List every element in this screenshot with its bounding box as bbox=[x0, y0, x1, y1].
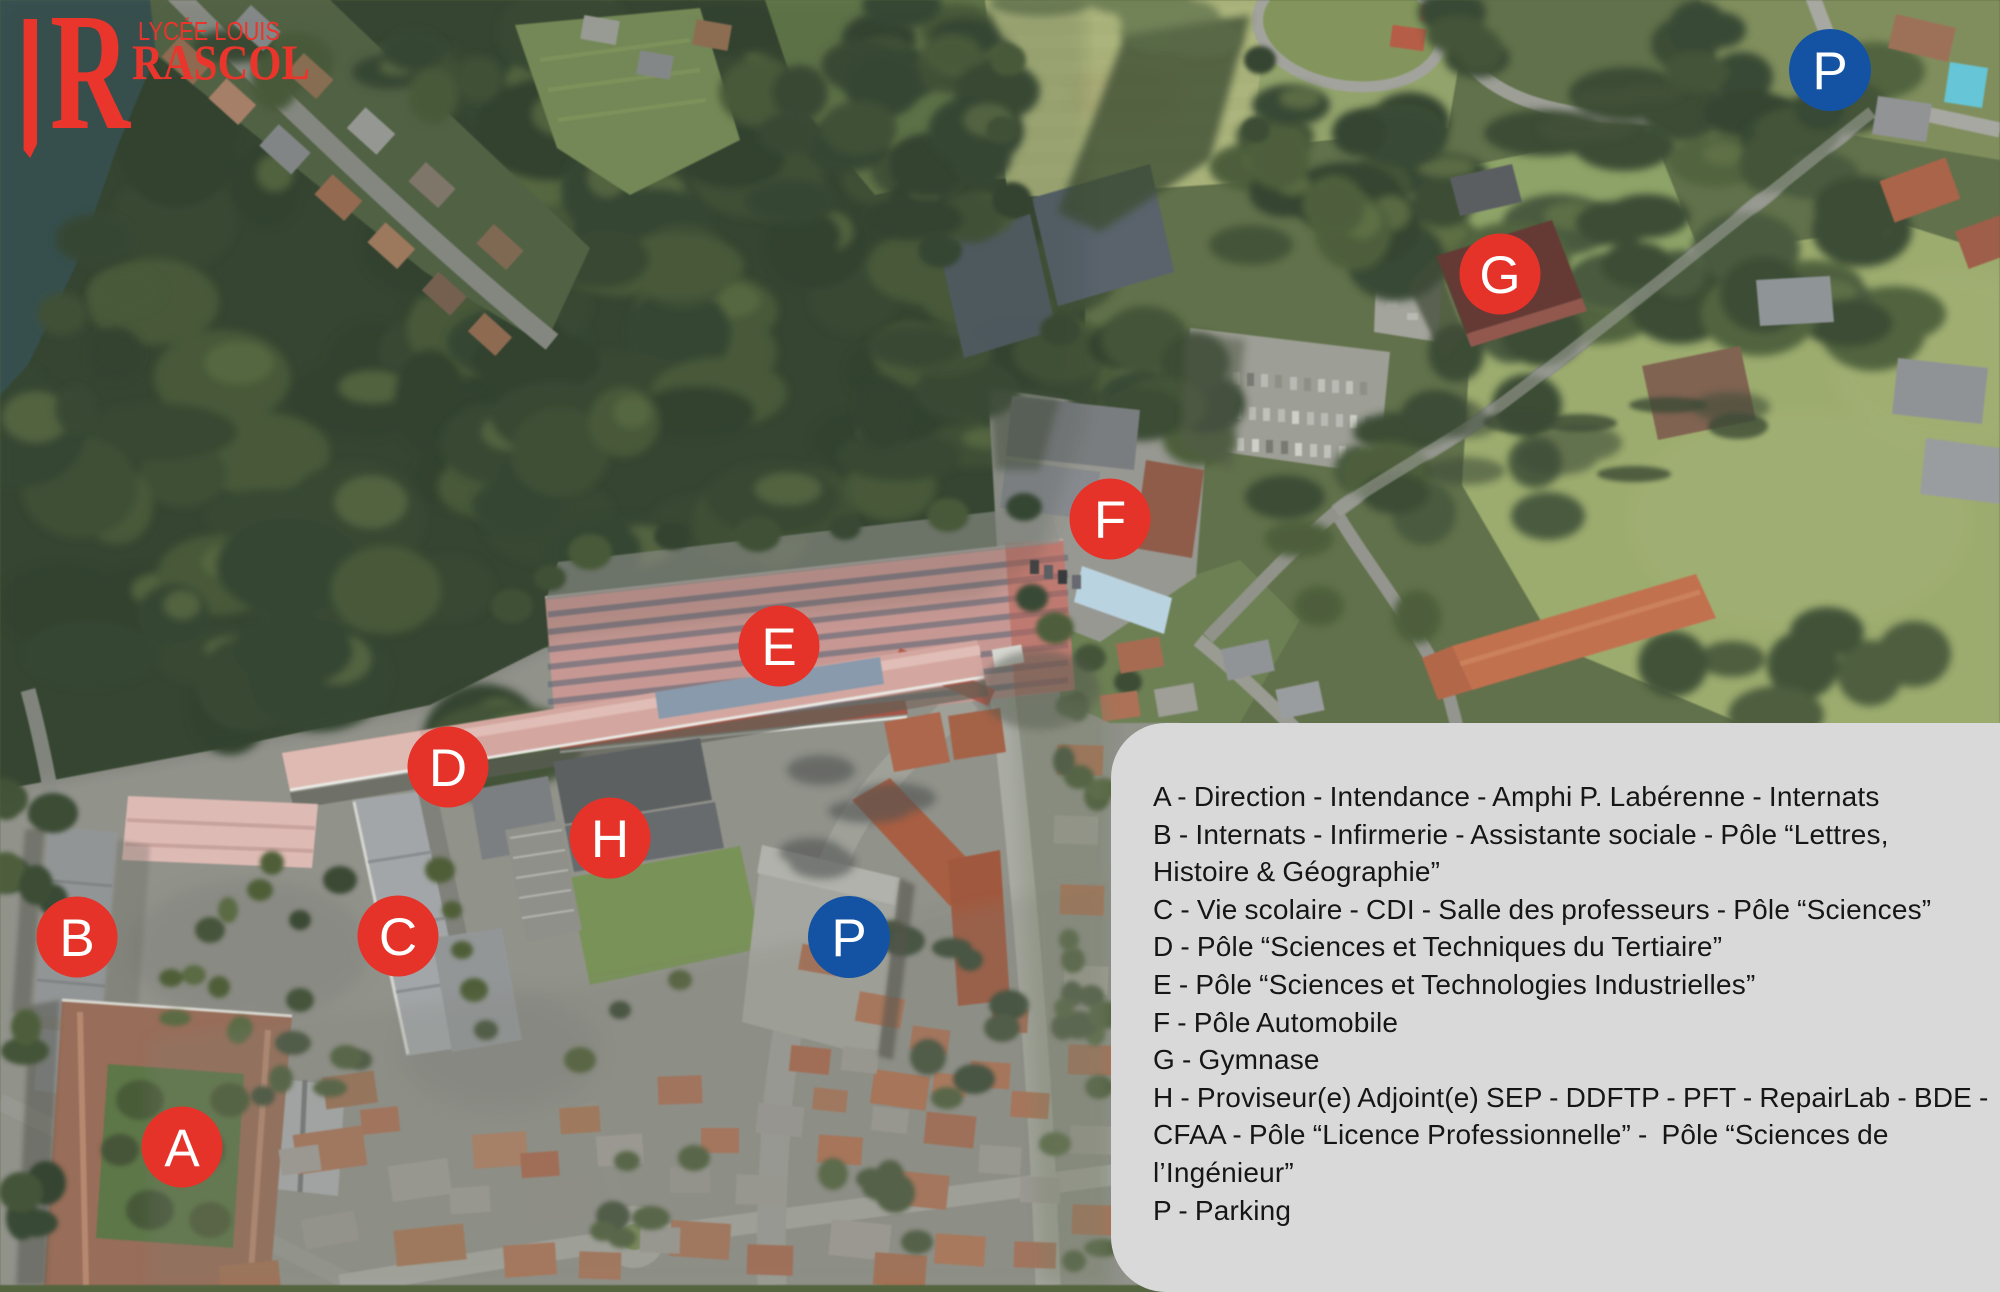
svg-text:H: H bbox=[591, 810, 629, 869]
svg-text:A: A bbox=[164, 1119, 200, 1178]
svg-text:G: G bbox=[1479, 246, 1520, 305]
svg-text:P: P bbox=[1812, 42, 1847, 101]
svg-text:D: D bbox=[429, 739, 467, 798]
svg-text:F: F bbox=[1094, 491, 1126, 550]
svg-text:E: E bbox=[761, 618, 796, 677]
svg-text:RASCOL: RASCOL bbox=[132, 34, 310, 90]
svg-text:C: C bbox=[379, 908, 417, 967]
svg-text:B: B bbox=[59, 909, 94, 968]
svg-text:R: R bbox=[50, 0, 132, 165]
svg-text:P: P bbox=[831, 909, 866, 968]
